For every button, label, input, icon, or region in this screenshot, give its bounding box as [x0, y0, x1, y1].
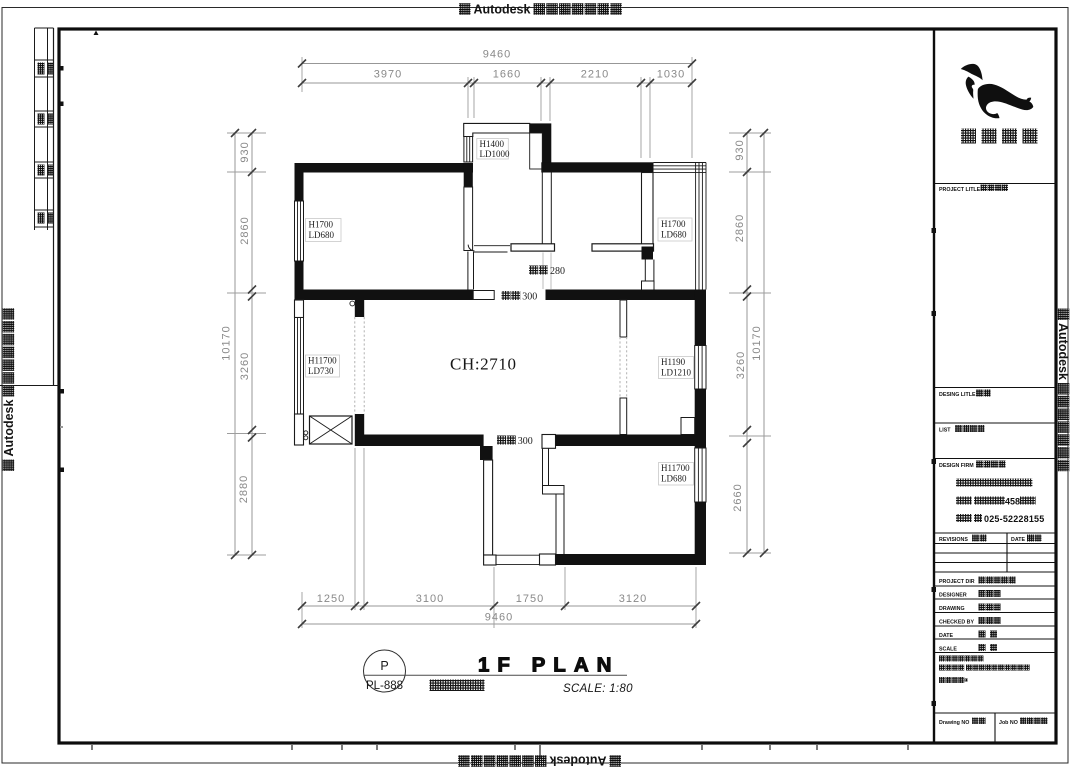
- svg-text:DATE: DATE: [939, 633, 953, 639]
- svg-text:P: P: [380, 659, 388, 673]
- svg-text:PROJECT DIR: PROJECT DIR: [939, 579, 975, 585]
- svg-text:2660: 2660: [732, 483, 744, 511]
- svg-text:LD680: LD680: [309, 230, 335, 240]
- svg-text:2210: 2210: [581, 69, 609, 81]
- svg-text:CH:2710: CH:2710: [450, 355, 517, 374]
- svg-text:10170: 10170: [221, 325, 233, 361]
- svg-text:PROJECT LITLE: PROJECT LITLE: [939, 187, 981, 193]
- svg-text:LD1000: LD1000: [480, 149, 510, 159]
- svg-text:DESIGNER: DESIGNER: [939, 593, 967, 599]
- svg-text:LD730: LD730: [308, 366, 334, 376]
- svg-text:930: 930: [734, 139, 746, 160]
- svg-text:10170: 10170: [751, 325, 763, 361]
- svg-text:SCALE: SCALE: [939, 647, 957, 653]
- svg-text:REVISIONS: REVISIONS: [939, 537, 968, 543]
- svg-text:9460: 9460: [485, 612, 513, 624]
- svg-text:H11700: H11700: [308, 356, 337, 366]
- svg-text:H1190: H1190: [661, 357, 686, 367]
- svg-text:LD680: LD680: [661, 474, 687, 484]
- svg-text:CHECKED BY: CHECKED BY: [939, 620, 974, 626]
- svg-text:1750: 1750: [516, 593, 544, 605]
- svg-text:3970: 3970: [374, 69, 402, 81]
- svg-text:2860: 2860: [734, 214, 746, 242]
- svg-text:458: 458: [1005, 497, 1020, 507]
- svg-text:H1700: H1700: [661, 219, 686, 229]
- svg-text:2860: 2860: [239, 216, 251, 244]
- svg-text:DRAWING: DRAWING: [939, 606, 965, 612]
- svg-text:3260: 3260: [239, 352, 251, 380]
- svg-text:Job NO: Job NO: [999, 720, 1018, 726]
- svg-text:SCALE: 1:80: SCALE: 1:80: [563, 683, 633, 695]
- svg-text:280: 280: [550, 266, 565, 277]
- svg-text:930: 930: [239, 141, 251, 162]
- svg-text:300: 300: [518, 436, 533, 447]
- svg-text:DATE: DATE: [1011, 537, 1025, 543]
- svg-text:1660: 1660: [493, 69, 521, 81]
- svg-text:H11700: H11700: [661, 463, 690, 473]
- svg-text:9460: 9460: [483, 49, 511, 61]
- svg-text:LIST: LIST: [939, 428, 951, 434]
- svg-text:PL-888: PL-888: [366, 680, 403, 692]
- svg-text:LD680: LD680: [661, 230, 687, 240]
- svg-text:LD1210: LD1210: [661, 368, 691, 378]
- svg-text:2880: 2880: [238, 475, 250, 503]
- svg-text:DESIGN FIRM: DESIGN FIRM: [939, 463, 974, 469]
- svg-text:300: 300: [522, 292, 537, 303]
- svg-text:3120: 3120: [619, 593, 647, 605]
- svg-text:H1400: H1400: [480, 139, 505, 149]
- svg-text:DESING LITLE: DESING LITLE: [939, 392, 976, 398]
- svg-text:1030: 1030: [657, 69, 685, 81]
- svg-text:025-52228155: 025-52228155: [984, 514, 1044, 524]
- svg-text:1250: 1250: [317, 593, 345, 605]
- svg-text:H1700: H1700: [309, 220, 334, 230]
- svg-text:Drawing NO: Drawing NO: [939, 720, 969, 726]
- svg-text:3260: 3260: [735, 351, 747, 379]
- svg-text:1F PLAN: 1F PLAN: [478, 654, 619, 677]
- svg-text:3100: 3100: [416, 593, 444, 605]
